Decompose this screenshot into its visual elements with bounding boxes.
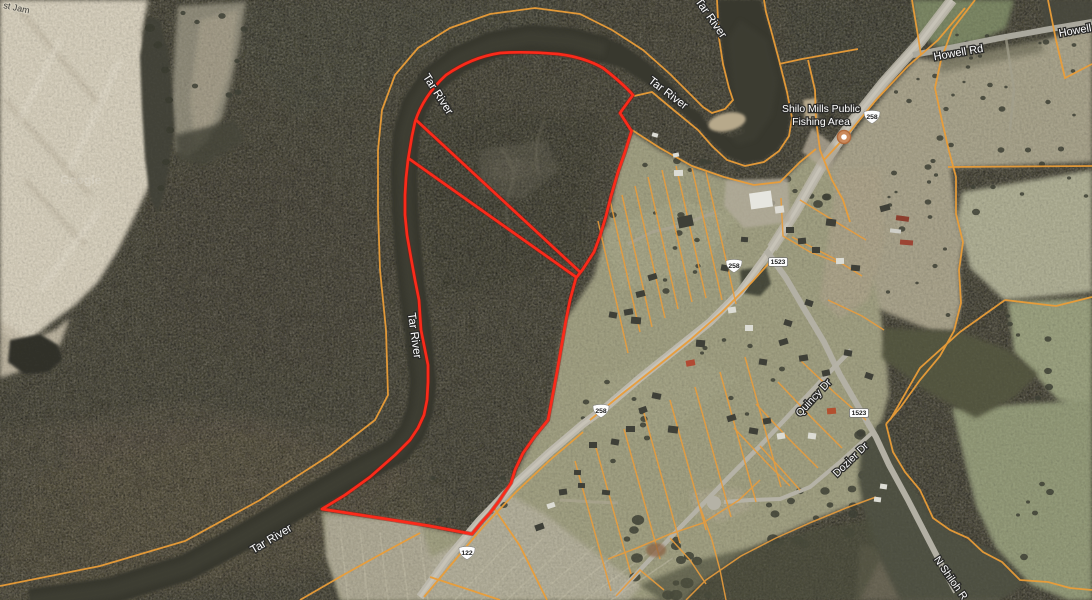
svg-text:Fishing Area: Fishing Area <box>792 117 850 128</box>
svg-text:258: 258 <box>866 114 878 121</box>
svg-text:1523: 1523 <box>771 259 786 266</box>
svg-text:1523: 1523 <box>852 410 867 417</box>
svg-text:Shilo Mills Public: Shilo Mills Public <box>782 104 860 115</box>
svg-text:122: 122 <box>461 550 473 557</box>
svg-text:Google: Google <box>60 173 102 187</box>
svg-text:258: 258 <box>728 263 740 270</box>
svg-text:258: 258 <box>595 408 607 415</box>
